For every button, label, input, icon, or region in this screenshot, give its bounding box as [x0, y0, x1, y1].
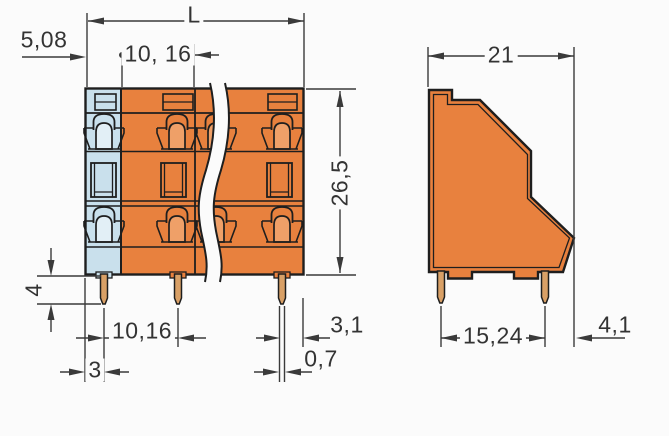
dim-label-26-5: 26,5: [329, 157, 352, 210]
dim-label-3-1: 3,1: [330, 314, 363, 337]
side-profile: [429, 90, 574, 279]
dim-label-10-16-bottom: 10,16: [109, 320, 175, 343]
dim-label-15-24: 15,24: [460, 325, 526, 348]
dim-label-L: L: [184, 4, 203, 27]
dim-label-4: 4: [23, 283, 46, 296]
dim-label-21: 21: [485, 44, 518, 67]
dim-label-4-1: 4,1: [598, 314, 631, 337]
dim-label-10-16-top: 10, 16: [122, 43, 195, 66]
technical-drawing-page: 5,08 L 10, 16 26,5 4 10,16 3 3,1 0,7 21 …: [0, 0, 669, 436]
dim-label-3: 3: [85, 359, 104, 382]
side-view: [429, 90, 574, 303]
dim-label-5-08: 5,08: [21, 29, 68, 52]
front-view: [84, 83, 304, 304]
front-pins: [96, 272, 290, 304]
dim-label-0-7: 0,7: [304, 348, 337, 371]
